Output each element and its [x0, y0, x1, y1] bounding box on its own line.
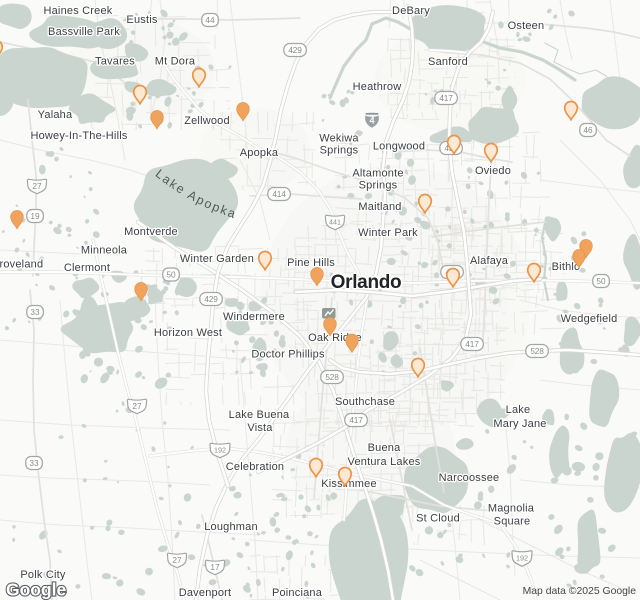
svg-text:Minneola: Minneola [81, 245, 128, 257]
svg-text:Davenport: Davenport [179, 587, 232, 599]
svg-text:Maitland: Maitland [358, 201, 401, 213]
svg-text:Loughman: Loughman [204, 521, 258, 533]
svg-text:Narcoossee: Narcoossee [439, 472, 500, 484]
svg-text:27: 27 [32, 181, 42, 191]
svg-text:Ventura Lakes: Ventura Lakes [348, 456, 421, 468]
svg-text:Celebration: Celebration [226, 461, 284, 473]
svg-text:441: 441 [329, 218, 341, 227]
svg-text:Google: Google [6, 580, 67, 600]
svg-text:Poinciana: Poinciana [272, 587, 323, 599]
svg-text:Square: Square [494, 516, 531, 528]
svg-text:417: 417 [349, 415, 363, 425]
svg-text:19: 19 [30, 211, 40, 221]
svg-text:Alafaya: Alafaya [470, 255, 509, 267]
svg-text:Southchase: Southchase [335, 396, 395, 408]
svg-text:429: 429 [204, 294, 218, 304]
svg-text:528: 528 [325, 372, 339, 382]
svg-text:Clermont: Clermont [64, 262, 110, 274]
svg-text:Lake: Lake [506, 404, 531, 416]
svg-text:528: 528 [530, 346, 544, 356]
svg-text:Mt Dora: Mt Dora [155, 56, 196, 68]
svg-text:Apopka: Apopka [240, 147, 279, 159]
svg-text:17: 17 [210, 562, 220, 572]
svg-text:Mary Jane: Mary Jane [493, 418, 546, 430]
svg-text:33: 33 [29, 458, 39, 468]
svg-text:Springs: Springs [320, 145, 359, 157]
svg-text:33: 33 [30, 307, 40, 317]
svg-text:Longwood: Longwood [373, 141, 425, 153]
svg-text:414: 414 [272, 189, 286, 199]
svg-text:Map data ©2025 Google: Map data ©2025 Google [523, 586, 637, 597]
svg-text:27: 27 [132, 401, 142, 411]
svg-text:Osteen: Osteen [508, 20, 545, 32]
svg-text:417: 417 [465, 339, 479, 349]
svg-text:Tavares: Tavares [95, 56, 135, 68]
svg-text:Wekiwa: Wekiwa [319, 133, 359, 145]
svg-text:192: 192 [214, 446, 226, 455]
svg-text:Winter Park: Winter Park [358, 227, 418, 239]
svg-text:50: 50 [596, 276, 606, 286]
svg-text:Montverde: Montverde [124, 226, 178, 238]
svg-text:Magnolia: Magnolia [488, 503, 535, 515]
svg-text:Pine Hills: Pine Hills [287, 257, 335, 269]
svg-text:27: 27 [172, 555, 182, 565]
svg-text:Altamonte: Altamonte [352, 168, 403, 180]
svg-text:46: 46 [583, 125, 593, 135]
svg-text:Haines Creek: Haines Creek [43, 5, 112, 17]
svg-text:50: 50 [166, 270, 176, 280]
svg-text:Orlando: Orlando [331, 272, 402, 293]
svg-text:Groveland: Groveland [0, 259, 43, 271]
svg-text:417: 417 [439, 93, 453, 103]
svg-text:Horizon West: Horizon West [154, 327, 222, 339]
svg-text:44: 44 [205, 15, 215, 25]
svg-text:Zellwood: Zellwood [184, 115, 230, 127]
svg-text:Vista: Vista [247, 422, 273, 434]
svg-text:Doctor Phillips: Doctor Phillips [251, 349, 325, 361]
svg-text:429: 429 [288, 45, 302, 55]
svg-text:Wedgefield: Wedgefield [561, 313, 618, 325]
svg-text:Oviedo: Oviedo [475, 165, 511, 177]
svg-text:Springs: Springs [359, 180, 398, 192]
svg-text:4: 4 [369, 116, 374, 126]
svg-text:Heathrow: Heathrow [353, 81, 402, 93]
svg-text:Sanford: Sanford [428, 56, 468, 68]
svg-text:St Cloud: St Cloud [416, 513, 460, 525]
svg-text:Winter Garden: Winter Garden [180, 253, 254, 265]
svg-text:192: 192 [516, 554, 528, 563]
svg-text:Windermere: Windermere [223, 311, 285, 323]
svg-text:Buena: Buena [368, 442, 401, 454]
svg-text:Eustis: Eustis [126, 14, 157, 26]
svg-text:Yalaha: Yalaha [38, 109, 73, 121]
svg-text:Howey-In-The-Hills: Howey-In-The-Hills [30, 130, 127, 142]
svg-text:DeBary: DeBary [392, 5, 430, 17]
svg-text:Bassville Park: Bassville Park [48, 26, 120, 38]
svg-text:Lake Buena: Lake Buena [229, 409, 290, 421]
